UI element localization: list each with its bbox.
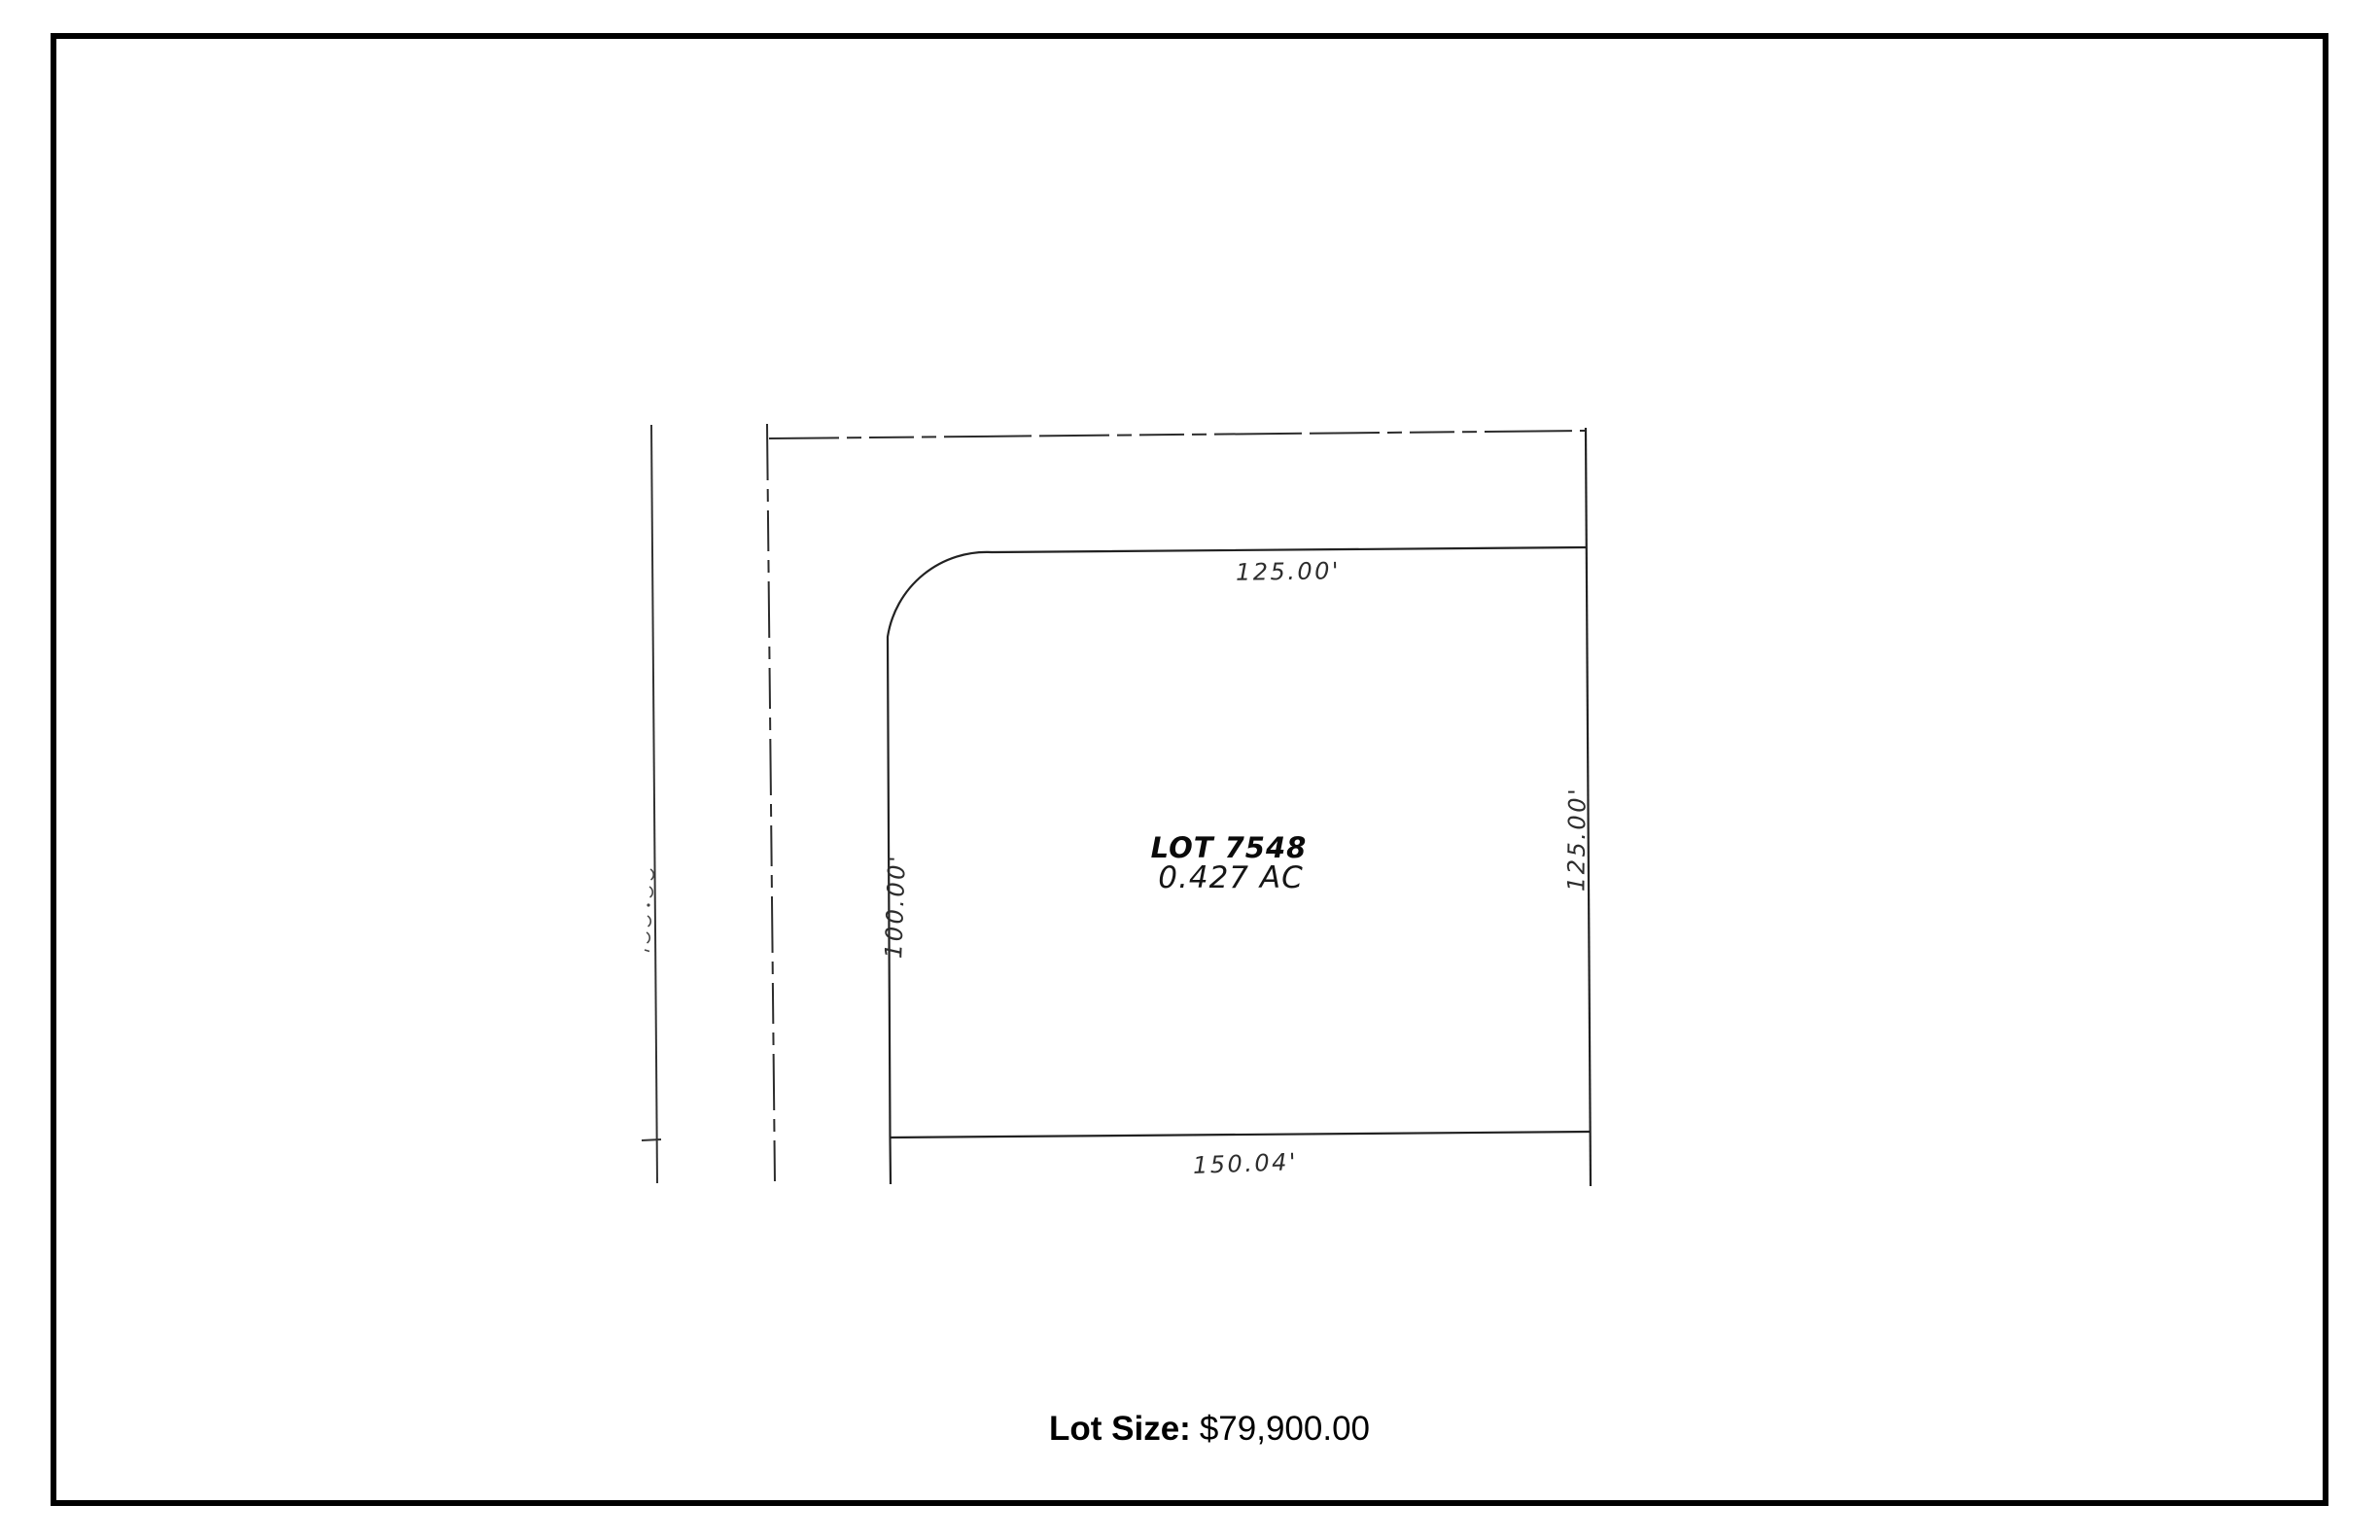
right-of-way-line-horizontal	[769, 431, 1586, 438]
plat-document: 125.00' 125.00' 100.00' 150.04' LOT 7548…	[0, 0, 2380, 1540]
road-edge-line	[651, 425, 657, 1183]
lot-price-line: Lot Size:$79,900.00	[1049, 1410, 1370, 1449]
dimension-right: 125.00'	[1562, 787, 1591, 892]
lot-size-label: Lot Size:	[1049, 1410, 1191, 1448]
survey-tick	[642, 1139, 661, 1140]
right-of-way-line-vertical	[767, 424, 775, 1184]
clipped-text-fragments	[645, 869, 653, 952]
dimension-bottom: 150.04'	[1193, 1148, 1299, 1179]
lot-bottom-boundary	[891, 1132, 1591, 1137]
dimension-left: 100.00'	[880, 854, 911, 960]
plat-drawing	[0, 0, 2380, 1540]
lot-number-label: LOT 7548	[1151, 831, 1308, 864]
dimension-top: 125.00'	[1236, 557, 1341, 586]
lot-area-label: 0.427 AC	[1158, 860, 1303, 895]
lot-size-value: $79,900.00	[1200, 1410, 1370, 1448]
page-border	[53, 36, 2326, 1503]
